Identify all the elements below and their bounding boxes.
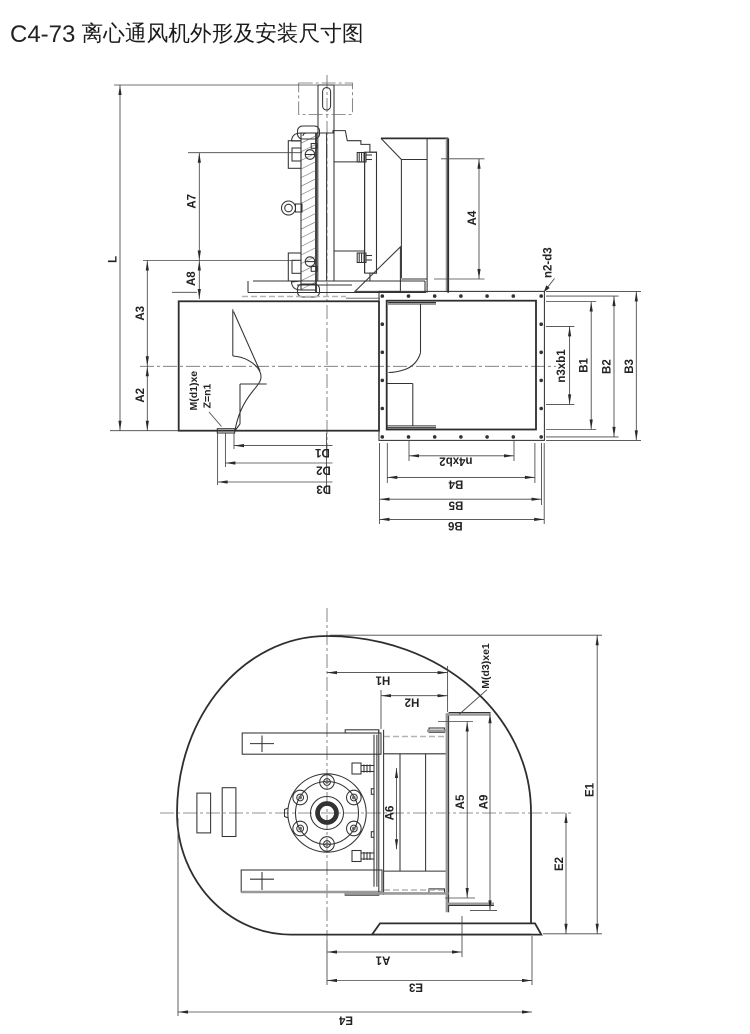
svg-text:H2: H2 [405,696,420,708]
svg-text:B5: B5 [448,499,463,511]
svg-text:H1: H1 [375,673,390,685]
svg-text:A7: A7 [187,194,199,209]
svg-text:C4-73: C4-73 [10,21,75,48]
svg-text:M(d3)xe1: M(d3)xe1 [480,643,492,689]
svg-text:B3: B3 [624,359,636,374]
svg-text:A1: A1 [375,954,390,966]
svg-text:n2-d3: n2-d3 [543,247,555,278]
svg-text:A2: A2 [135,388,147,403]
svg-text:D1: D1 [314,446,329,458]
svg-text:A5: A5 [455,794,467,809]
svg-text:B1: B1 [579,357,591,372]
svg-text:A8: A8 [186,271,198,286]
svg-text:n4xb2: n4xb2 [439,455,472,467]
svg-text:B2: B2 [601,359,613,374]
svg-text:E1: E1 [585,782,597,797]
svg-text:A4: A4 [467,210,479,225]
svg-text:E4: E4 [338,1013,353,1025]
svg-text:E2: E2 [554,857,566,871]
svg-text:D2: D2 [316,463,331,475]
svg-text:L: L [107,256,119,263]
svg-text:B4: B4 [448,478,463,490]
svg-text:A6: A6 [385,806,397,821]
svg-text:M(d1)xe: M(d1)xe [188,371,200,411]
svg-text:Z=n1: Z=n1 [202,383,214,408]
svg-text:B6: B6 [448,519,463,531]
svg-text:A3: A3 [135,306,147,321]
svg-text:D3: D3 [316,482,331,494]
svg-text:A9: A9 [478,795,490,810]
svg-text:E3: E3 [409,981,423,993]
svg-text:n3xb1: n3xb1 [556,349,568,383]
